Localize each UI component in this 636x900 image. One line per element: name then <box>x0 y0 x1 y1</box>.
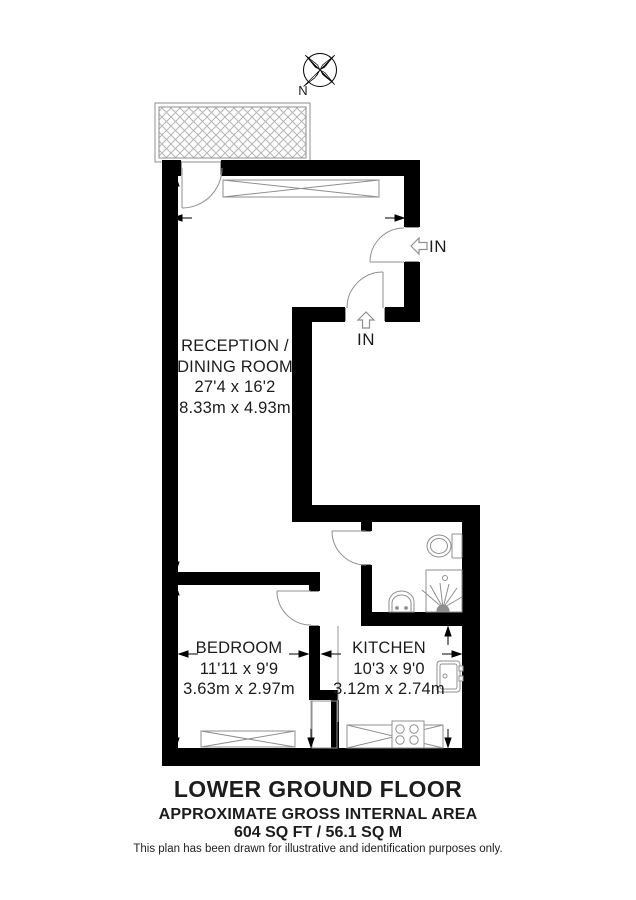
wall-entrance-right <box>385 307 420 322</box>
compass <box>304 54 337 87</box>
bedroom-dims-metric: 3.63m x 2.97m <box>183 679 295 700</box>
wall-bedroom-stub <box>309 585 320 591</box>
wall-top <box>221 160 420 176</box>
reception-dims-imperial: 27'4 x 16'2 <box>177 377 293 398</box>
bedroom-name: BEDROOM <box>183 638 295 659</box>
reception-name-line2: DINING ROOM <box>177 357 293 378</box>
reception-window <box>223 180 379 197</box>
toilet <box>427 534 462 558</box>
hob <box>392 721 424 748</box>
bedroom-window <box>201 731 295 747</box>
area-value: 604 SQ FT / 56.1 SQ M <box>234 824 402 842</box>
wall-bedroom-right <box>309 626 320 698</box>
entrance-side-label: IN <box>429 237 447 257</box>
area-heading: APPROXIMATE GROSS INTERNAL AREA <box>159 806 478 824</box>
wall-bathroom-stub <box>361 522 372 531</box>
floorplan-drawing <box>0 0 636 900</box>
patio-door <box>182 168 222 208</box>
floor-title: LOWER GROUND FLOOR <box>174 776 462 803</box>
arrow-down <box>308 729 314 747</box>
arrow-up <box>445 627 451 645</box>
wall-right-lower <box>462 505 480 766</box>
wall-bathroom-left <box>361 565 372 612</box>
bedroom-dims-imperial: 11'11 x 9'9 <box>183 659 295 680</box>
wall-kitchen-top <box>292 505 480 522</box>
wash-basin <box>389 591 414 612</box>
bathroom-door <box>332 531 366 565</box>
arrow-right <box>385 215 404 221</box>
bedroom-door <box>277 591 311 625</box>
reception-label: RECEPTION / DINING ROOM 27'4 x 16'2 8.33… <box>177 336 293 418</box>
patio-terrace <box>155 103 310 162</box>
bedroom-label: BEDROOM 11'11 x 9'9 3.63m x 2.97m <box>183 638 295 700</box>
in-arrow-up <box>358 312 374 328</box>
wall-bathroom-bottom <box>361 612 462 626</box>
shower <box>422 570 462 612</box>
entrance-door-rear <box>347 272 383 308</box>
wall-bottom <box>162 748 480 766</box>
arrow-down <box>445 729 451 747</box>
in-arrow-left <box>411 238 427 254</box>
reception-name-line1: RECEPTION / <box>177 336 293 357</box>
bathroom-fixtures <box>389 534 462 612</box>
entrance-rear-label: IN <box>357 330 375 350</box>
disclaimer-text: This plan has been drawn for illustrativ… <box>133 843 502 855</box>
kitchen-dims-metric: 3.12m x 2.74m <box>333 679 445 700</box>
compass-north-label: N <box>298 83 307 98</box>
kitchen-label: KITCHEN 10'3 x 9'0 3.12m x 2.74m <box>333 638 445 700</box>
wall-bedroom-top <box>162 572 320 585</box>
floorplan-page: N RECEPTION / DINING ROOM 27'4 x 16'2 8.… <box>0 0 636 900</box>
wall-left <box>162 160 178 766</box>
reception-dims-metric: 8.33m x 4.93m <box>177 398 293 419</box>
wall-reception-right <box>292 307 312 522</box>
kitchen-name: KITCHEN <box>333 638 445 659</box>
kitchen-dims-imperial: 10'3 x 9'0 <box>333 659 445 680</box>
wall-right-upper <box>404 160 420 227</box>
entrance-door-side <box>370 228 404 262</box>
